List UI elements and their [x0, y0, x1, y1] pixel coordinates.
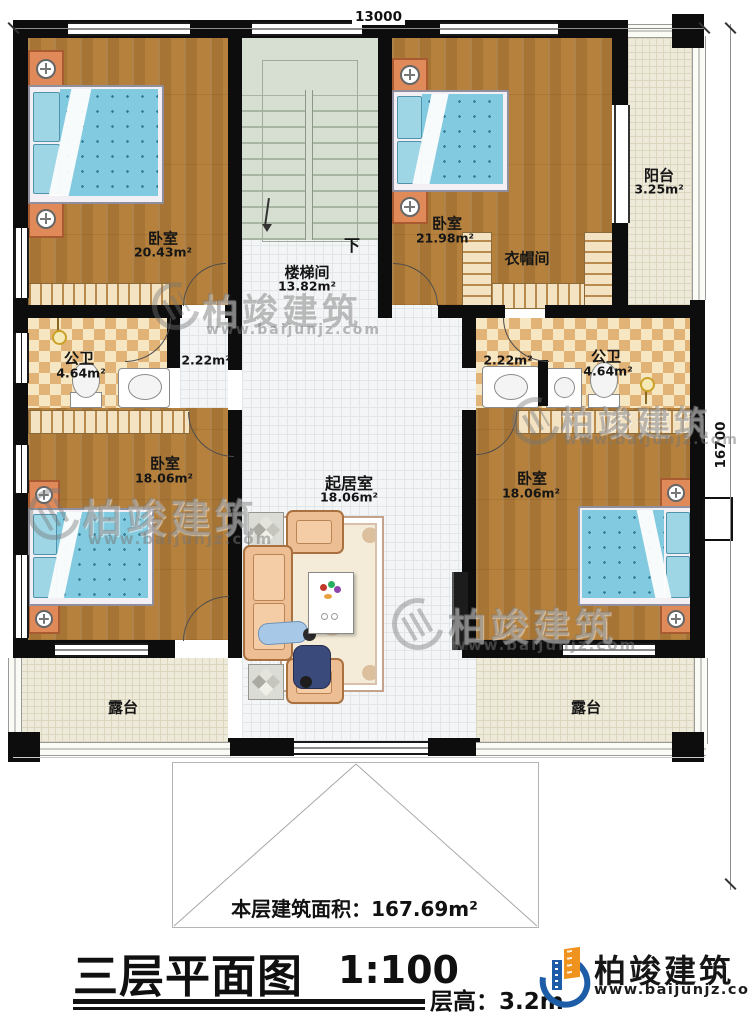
window-living-opening	[294, 741, 428, 755]
flower-icon	[324, 594, 332, 599]
cushion	[296, 520, 332, 544]
watermark-logo-bars	[401, 607, 435, 642]
window	[55, 643, 148, 657]
stair-handrail	[305, 90, 313, 240]
floor-plan-canvas: 本层建筑面积：167.69m² 13000 16700 柏竣建筑 www.bai…	[0, 0, 750, 1013]
stair-arrow-head	[262, 224, 272, 232]
window	[14, 445, 29, 493]
lamp-icon	[400, 197, 420, 217]
pillow	[666, 512, 690, 554]
area-bedroom-tr: 21.98m²	[416, 231, 474, 246]
watermark-logo-bars	[37, 497, 71, 532]
cup-icon	[321, 613, 328, 620]
logo-building-blue-icon	[552, 960, 562, 990]
wall	[462, 318, 476, 368]
watermark-site: www.baijunjz.com	[88, 530, 273, 548]
wall	[612, 38, 628, 105]
lamp-icon	[667, 610, 685, 628]
flower-icon	[334, 586, 341, 593]
column	[672, 14, 704, 48]
window	[252, 22, 362, 36]
floor-area-value: 167.69m²	[371, 897, 478, 921]
nightstand	[660, 478, 692, 508]
dimension-line-right	[730, 24, 731, 890]
area-bedroom-br: 18.06m²	[502, 486, 560, 501]
label-terrace-right: 露台	[571, 697, 601, 718]
area-hall-left: 2.22m²	[181, 353, 230, 368]
window	[14, 555, 29, 638]
wardrobe-bedroom-bl	[28, 410, 190, 434]
coffee-table	[308, 572, 354, 634]
area-bathroom-left: 4.64m²	[56, 366, 105, 381]
pillow	[397, 96, 422, 139]
wall	[228, 738, 294, 756]
area-stairwell: 13.82m²	[278, 279, 336, 294]
nightstand	[28, 604, 60, 634]
cushion	[253, 554, 285, 601]
watermark-site: www.baijunjz.com	[452, 636, 637, 654]
nightstand	[28, 200, 64, 238]
area-bathroom-right: 4.64m²	[583, 364, 632, 379]
sliding-door-balcony	[614, 105, 630, 223]
brand-logo-icon	[540, 946, 592, 1006]
bed-bedroom-br	[578, 506, 694, 606]
label-cloakroom: 衣帽间	[504, 248, 549, 269]
area-balcony: 3.25m²	[634, 182, 683, 197]
area-bedroom-tl: 20.43m²	[134, 245, 192, 260]
wall	[612, 223, 628, 305]
person-lying	[257, 620, 308, 645]
window	[440, 22, 558, 36]
watermark-site: www.baijunjz.com	[206, 322, 381, 338]
window	[68, 22, 190, 36]
page-title: 三层平面图	[73, 940, 303, 1005]
washer-door-icon	[554, 377, 575, 398]
side-table	[248, 664, 284, 700]
bed-bedroom-tl	[28, 85, 164, 204]
sink-basin-right	[494, 374, 528, 400]
flower-icon	[320, 584, 327, 591]
person-sitting-head	[300, 676, 312, 688]
pillow	[33, 92, 60, 142]
dimension-top-value: 13000	[352, 9, 405, 25]
floor-lamp-icon	[640, 377, 655, 392]
dimension-line-top	[13, 28, 705, 29]
watermark-logo-bars	[162, 291, 190, 320]
lamp-icon	[400, 65, 420, 85]
watermark-logo-bars	[522, 406, 550, 435]
cup-icon	[331, 613, 338, 620]
wall	[378, 20, 392, 318]
wall-flue-protrusion	[703, 497, 733, 541]
armchair-top	[286, 510, 344, 554]
window	[14, 333, 29, 383]
bed-bedroom-tr	[392, 90, 509, 192]
balcony-railing	[692, 36, 706, 300]
wall	[545, 305, 705, 318]
floor-area-label: 本层建筑面积：	[231, 897, 371, 921]
label-stairs-down: 下	[344, 232, 360, 256]
lamp-icon	[35, 610, 53, 628]
watermark-site: www.baijunjz.com	[564, 432, 739, 448]
wall	[228, 20, 242, 318]
wall	[438, 305, 505, 318]
label-terrace-left: 露台	[108, 697, 138, 718]
wall	[228, 640, 242, 658]
brand-website: www.baijunjz.com	[594, 982, 750, 998]
title-underline	[73, 999, 425, 1004]
terrace-railing	[8, 742, 230, 756]
wall	[690, 300, 705, 658]
lamp-icon	[36, 59, 56, 79]
nightstand	[660, 604, 692, 634]
nightstand	[392, 58, 428, 92]
nightstand	[392, 190, 428, 224]
table-lamp-icon	[252, 668, 280, 696]
wall	[428, 738, 480, 756]
lamp-icon	[667, 484, 685, 502]
roof-edge-line	[13, 757, 705, 758]
area-hall-right: 2.22m²	[483, 353, 532, 368]
wardrobe-cloakroom-right	[584, 232, 614, 309]
pendant-lamp-icon	[52, 330, 67, 345]
lamp-icon	[36, 209, 56, 229]
floor-area-note: 本层建筑面积：167.69m²	[172, 893, 537, 922]
logo-building-orange-icon	[564, 947, 580, 979]
sink-basin-left	[128, 374, 162, 400]
window	[14, 228, 29, 298]
nightstand	[28, 50, 64, 88]
area-living-room: 18.06m²	[320, 490, 378, 505]
title-underline-2	[73, 1007, 425, 1010]
person-sitting	[293, 645, 331, 689]
area-bedroom-bl: 18.06m²	[135, 471, 193, 486]
